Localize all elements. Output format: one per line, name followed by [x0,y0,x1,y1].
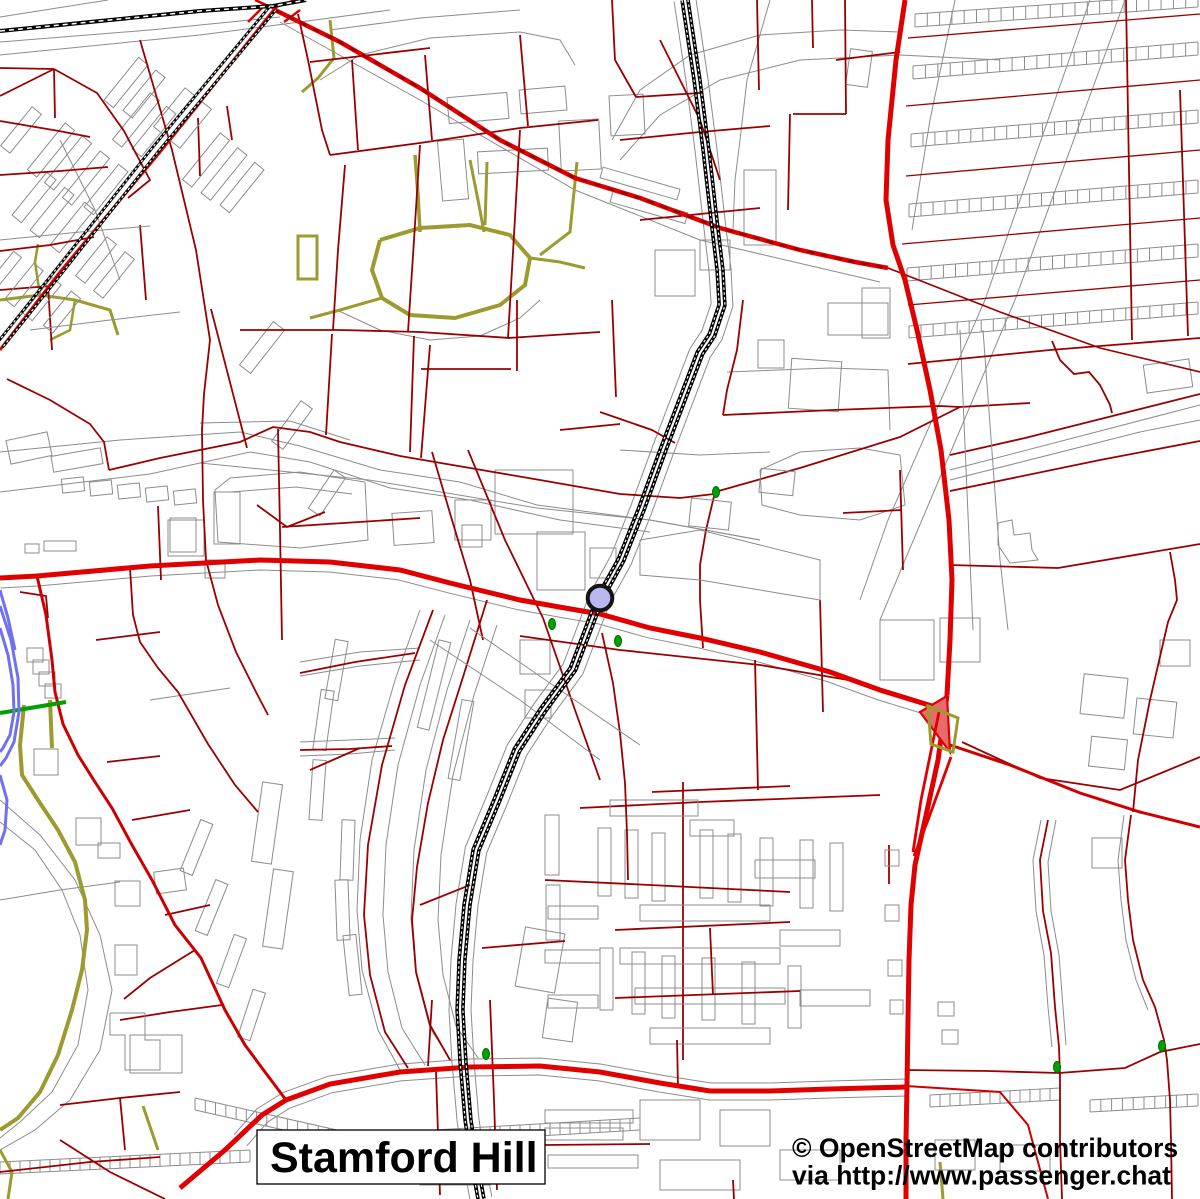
svg-text:© OpenStreetMap contributors: © OpenStreetMap contributors [792,1133,1178,1163]
svg-text:Stamford Hill: Stamford Hill [270,1134,538,1182]
svg-text:via http://www.passenger.chat: via http://www.passenger.chat [792,1161,1171,1191]
